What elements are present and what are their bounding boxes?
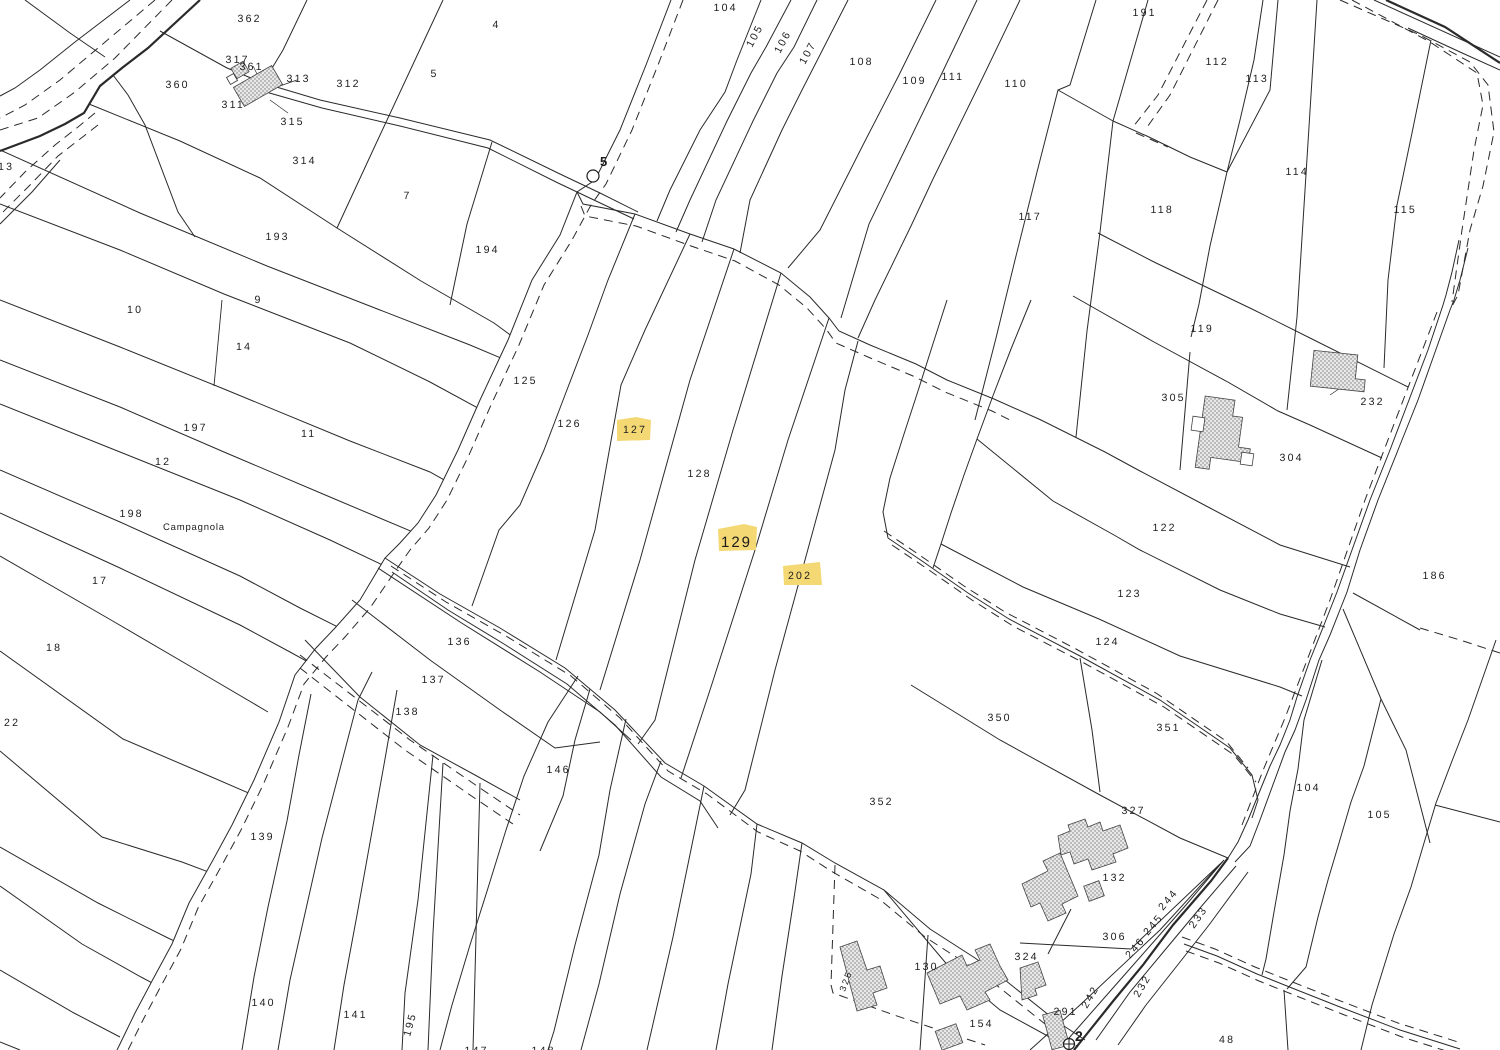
svg-text:109: 109 xyxy=(903,75,927,87)
svg-text:104: 104 xyxy=(714,2,738,14)
svg-text:193: 193 xyxy=(266,231,290,243)
svg-text:126: 126 xyxy=(558,418,582,430)
svg-text:136: 136 xyxy=(448,636,472,648)
svg-text:110: 110 xyxy=(1005,78,1029,90)
svg-text:197: 197 xyxy=(184,422,208,434)
svg-text:191: 191 xyxy=(1133,7,1157,19)
svg-text:324: 324 xyxy=(1015,951,1039,963)
svg-text:118: 118 xyxy=(1151,204,1175,216)
svg-text:350: 350 xyxy=(988,712,1012,724)
svg-text:108: 108 xyxy=(850,56,874,68)
svg-text:186: 186 xyxy=(1423,570,1447,582)
svg-text:361: 361 xyxy=(240,61,264,73)
svg-text:148: 148 xyxy=(532,1045,556,1050)
svg-text:104: 104 xyxy=(1297,782,1321,794)
svg-text:125: 125 xyxy=(514,375,538,387)
svg-text:12: 12 xyxy=(155,456,171,468)
svg-text:48: 48 xyxy=(1219,1034,1235,1046)
svg-text:111: 111 xyxy=(942,71,965,83)
svg-text:232: 232 xyxy=(1361,396,1385,408)
svg-text:127: 127 xyxy=(623,424,647,436)
svg-text:115: 115 xyxy=(1394,204,1418,216)
svg-text:314: 314 xyxy=(293,155,317,167)
svg-text:117: 117 xyxy=(1019,211,1043,223)
svg-text:306: 306 xyxy=(1103,931,1127,943)
svg-text:13: 13 xyxy=(0,161,14,173)
svg-text:351: 351 xyxy=(1157,722,1181,734)
svg-text:22: 22 xyxy=(4,717,20,729)
svg-text:146: 146 xyxy=(547,764,571,776)
svg-text:362: 362 xyxy=(238,13,262,25)
svg-text:305: 305 xyxy=(1162,392,1186,404)
svg-text:14: 14 xyxy=(236,341,252,353)
svg-text:5: 5 xyxy=(600,154,609,169)
svg-text:198: 198 xyxy=(120,508,144,520)
svg-text:7: 7 xyxy=(404,190,412,202)
svg-text:147: 147 xyxy=(465,1045,489,1050)
svg-text:202: 202 xyxy=(788,570,812,582)
svg-text:291: 291 xyxy=(1054,1006,1078,1018)
svg-text:123: 123 xyxy=(1118,588,1142,600)
svg-text:2: 2 xyxy=(1075,1028,1085,1044)
svg-text:124: 124 xyxy=(1096,636,1120,648)
svg-text:105: 105 xyxy=(1368,809,1392,821)
svg-text:119: 119 xyxy=(1191,323,1215,335)
svg-text:122: 122 xyxy=(1153,522,1177,534)
svg-text:18: 18 xyxy=(46,642,62,654)
svg-text:129: 129 xyxy=(721,534,752,551)
svg-text:304: 304 xyxy=(1280,452,1304,464)
svg-text:352: 352 xyxy=(870,796,894,808)
svg-text:327: 327 xyxy=(1122,805,1146,817)
svg-text:360: 360 xyxy=(166,79,190,91)
svg-text:154: 154 xyxy=(970,1018,994,1030)
svg-text:312: 312 xyxy=(337,78,361,90)
svg-text:Campagnola: Campagnola xyxy=(163,522,225,533)
svg-text:17: 17 xyxy=(92,575,108,587)
svg-text:113: 113 xyxy=(1246,73,1270,85)
svg-text:10: 10 xyxy=(127,304,143,316)
svg-text:114: 114 xyxy=(1286,166,1310,178)
svg-text:140: 140 xyxy=(252,997,276,1009)
svg-text:112: 112 xyxy=(1206,56,1230,68)
svg-text:138: 138 xyxy=(396,706,420,718)
svg-text:137: 137 xyxy=(422,674,446,686)
svg-text:132: 132 xyxy=(1103,872,1127,884)
svg-text:313: 313 xyxy=(287,73,311,85)
svg-text:5: 5 xyxy=(431,68,439,80)
svg-text:315: 315 xyxy=(281,116,305,128)
svg-text:128: 128 xyxy=(688,468,712,480)
svg-text:130: 130 xyxy=(915,961,939,973)
svg-text:139: 139 xyxy=(251,831,275,843)
svg-text:4: 4 xyxy=(493,19,501,31)
svg-text:194: 194 xyxy=(476,244,500,256)
svg-text:141: 141 xyxy=(344,1009,368,1021)
svg-text:311: 311 xyxy=(222,99,246,111)
svg-text:9: 9 xyxy=(255,294,263,306)
svg-text:11: 11 xyxy=(301,428,316,440)
